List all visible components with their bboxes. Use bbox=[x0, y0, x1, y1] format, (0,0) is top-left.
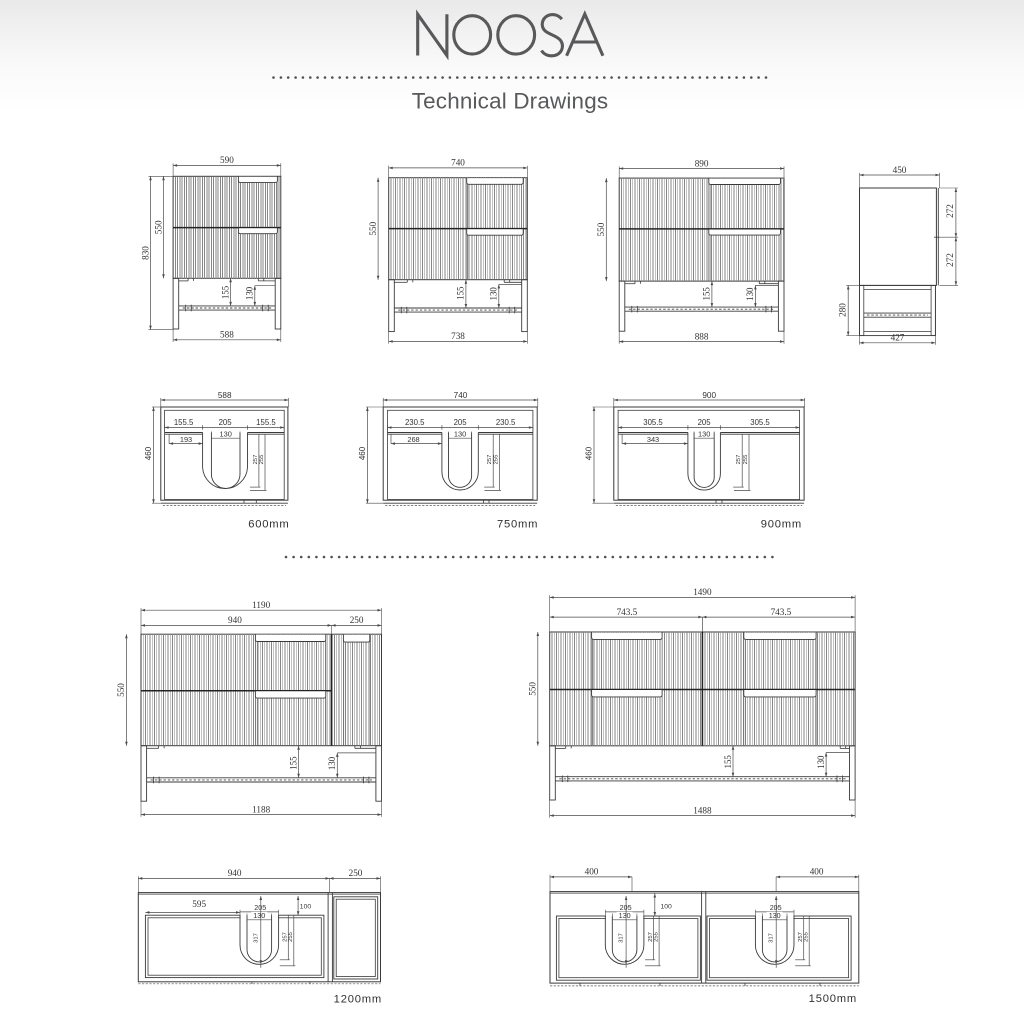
svg-text:550: 550 bbox=[368, 221, 378, 235]
svg-text:740: 740 bbox=[451, 158, 465, 168]
svg-text:743.5: 743.5 bbox=[771, 607, 792, 617]
svg-text:450: 450 bbox=[893, 165, 907, 175]
svg-text:1188: 1188 bbox=[252, 804, 270, 814]
svg-text:130: 130 bbox=[769, 911, 781, 920]
svg-text:940: 940 bbox=[228, 615, 242, 625]
svg-text:130: 130 bbox=[454, 429, 466, 438]
svg-text:250: 250 bbox=[349, 868, 363, 878]
svg-text:400: 400 bbox=[810, 867, 824, 877]
svg-text:460: 460 bbox=[144, 446, 153, 460]
svg-text:550: 550 bbox=[596, 222, 606, 236]
svg-text:272: 272 bbox=[945, 204, 955, 218]
svg-text:1190: 1190 bbox=[252, 600, 270, 610]
svg-text:155: 155 bbox=[220, 285, 230, 299]
svg-text:230.5: 230.5 bbox=[496, 418, 516, 427]
svg-text:750mm: 750mm bbox=[497, 519, 538, 531]
svg-text:460: 460 bbox=[358, 446, 367, 460]
svg-text:205: 205 bbox=[454, 418, 468, 427]
svg-text:588: 588 bbox=[218, 391, 232, 400]
svg-text:280: 280 bbox=[837, 303, 847, 317]
svg-text:1488: 1488 bbox=[693, 805, 712, 815]
svg-text:550: 550 bbox=[528, 682, 538, 696]
svg-text:250: 250 bbox=[350, 615, 364, 625]
svg-text:155: 155 bbox=[288, 756, 298, 770]
svg-text:1500mm: 1500mm bbox=[809, 993, 857, 1005]
svg-text:100: 100 bbox=[661, 904, 673, 911]
svg-text:130: 130 bbox=[619, 911, 631, 920]
svg-text:255: 255 bbox=[259, 455, 265, 465]
svg-text:130: 130 bbox=[220, 429, 232, 438]
svg-text:305.5: 305.5 bbox=[643, 418, 663, 427]
svg-text:155: 155 bbox=[723, 755, 733, 769]
svg-text:230.5: 230.5 bbox=[405, 418, 425, 427]
svg-text:193: 193 bbox=[180, 435, 192, 444]
svg-text:155.5: 155.5 bbox=[256, 418, 276, 427]
svg-text:900mm: 900mm bbox=[761, 519, 802, 531]
svg-text:830: 830 bbox=[140, 246, 150, 260]
svg-text:272: 272 bbox=[945, 253, 955, 267]
svg-text:155.5: 155.5 bbox=[174, 418, 194, 427]
svg-text:738: 738 bbox=[451, 331, 465, 341]
svg-text:305.5: 305.5 bbox=[750, 418, 770, 427]
svg-text:130: 130 bbox=[489, 287, 499, 301]
svg-text:130: 130 bbox=[745, 287, 755, 301]
svg-text:255: 255 bbox=[288, 932, 294, 942]
svg-text:890: 890 bbox=[695, 158, 709, 168]
svg-text:130: 130 bbox=[253, 911, 265, 920]
svg-text:205: 205 bbox=[698, 418, 712, 427]
svg-text:460: 460 bbox=[585, 446, 594, 460]
svg-text:257: 257 bbox=[253, 455, 259, 465]
svg-text:427: 427 bbox=[891, 333, 905, 343]
svg-text:550: 550 bbox=[116, 683, 126, 697]
svg-text:1200mm: 1200mm bbox=[334, 994, 382, 1006]
svg-text:257: 257 bbox=[487, 455, 493, 465]
svg-text:1490: 1490 bbox=[693, 587, 712, 597]
svg-text:100: 100 bbox=[300, 904, 312, 911]
svg-text:317: 317 bbox=[619, 933, 625, 943]
svg-text:268: 268 bbox=[407, 435, 419, 444]
svg-text:600mm: 600mm bbox=[248, 519, 289, 531]
svg-text:317: 317 bbox=[769, 933, 775, 943]
svg-text:257: 257 bbox=[736, 455, 742, 465]
svg-text:255: 255 bbox=[743, 455, 749, 465]
svg-text:588: 588 bbox=[220, 330, 234, 340]
svg-text:130: 130 bbox=[245, 286, 255, 300]
svg-text:255: 255 bbox=[653, 932, 659, 942]
svg-text:130: 130 bbox=[698, 429, 710, 438]
svg-text:255: 255 bbox=[494, 455, 500, 465]
svg-text:595: 595 bbox=[192, 899, 206, 909]
svg-text:155: 155 bbox=[702, 287, 712, 301]
svg-text:400: 400 bbox=[585, 867, 599, 877]
svg-text:130: 130 bbox=[327, 756, 337, 770]
svg-text:205: 205 bbox=[219, 418, 233, 427]
svg-text:Technical Drawings: Technical Drawings bbox=[412, 89, 609, 114]
svg-text:130: 130 bbox=[816, 755, 826, 769]
svg-text:317: 317 bbox=[253, 933, 259, 943]
svg-text:940: 940 bbox=[228, 868, 242, 878]
svg-text:590: 590 bbox=[220, 155, 234, 165]
svg-text:743.5: 743.5 bbox=[617, 607, 638, 617]
svg-text:740: 740 bbox=[454, 391, 468, 400]
svg-text:550: 550 bbox=[153, 220, 163, 234]
svg-text:888: 888 bbox=[695, 331, 709, 341]
svg-text:343: 343 bbox=[647, 435, 659, 444]
svg-text:900: 900 bbox=[702, 391, 716, 400]
svg-text:155: 155 bbox=[456, 286, 466, 300]
svg-text:255: 255 bbox=[803, 932, 809, 942]
